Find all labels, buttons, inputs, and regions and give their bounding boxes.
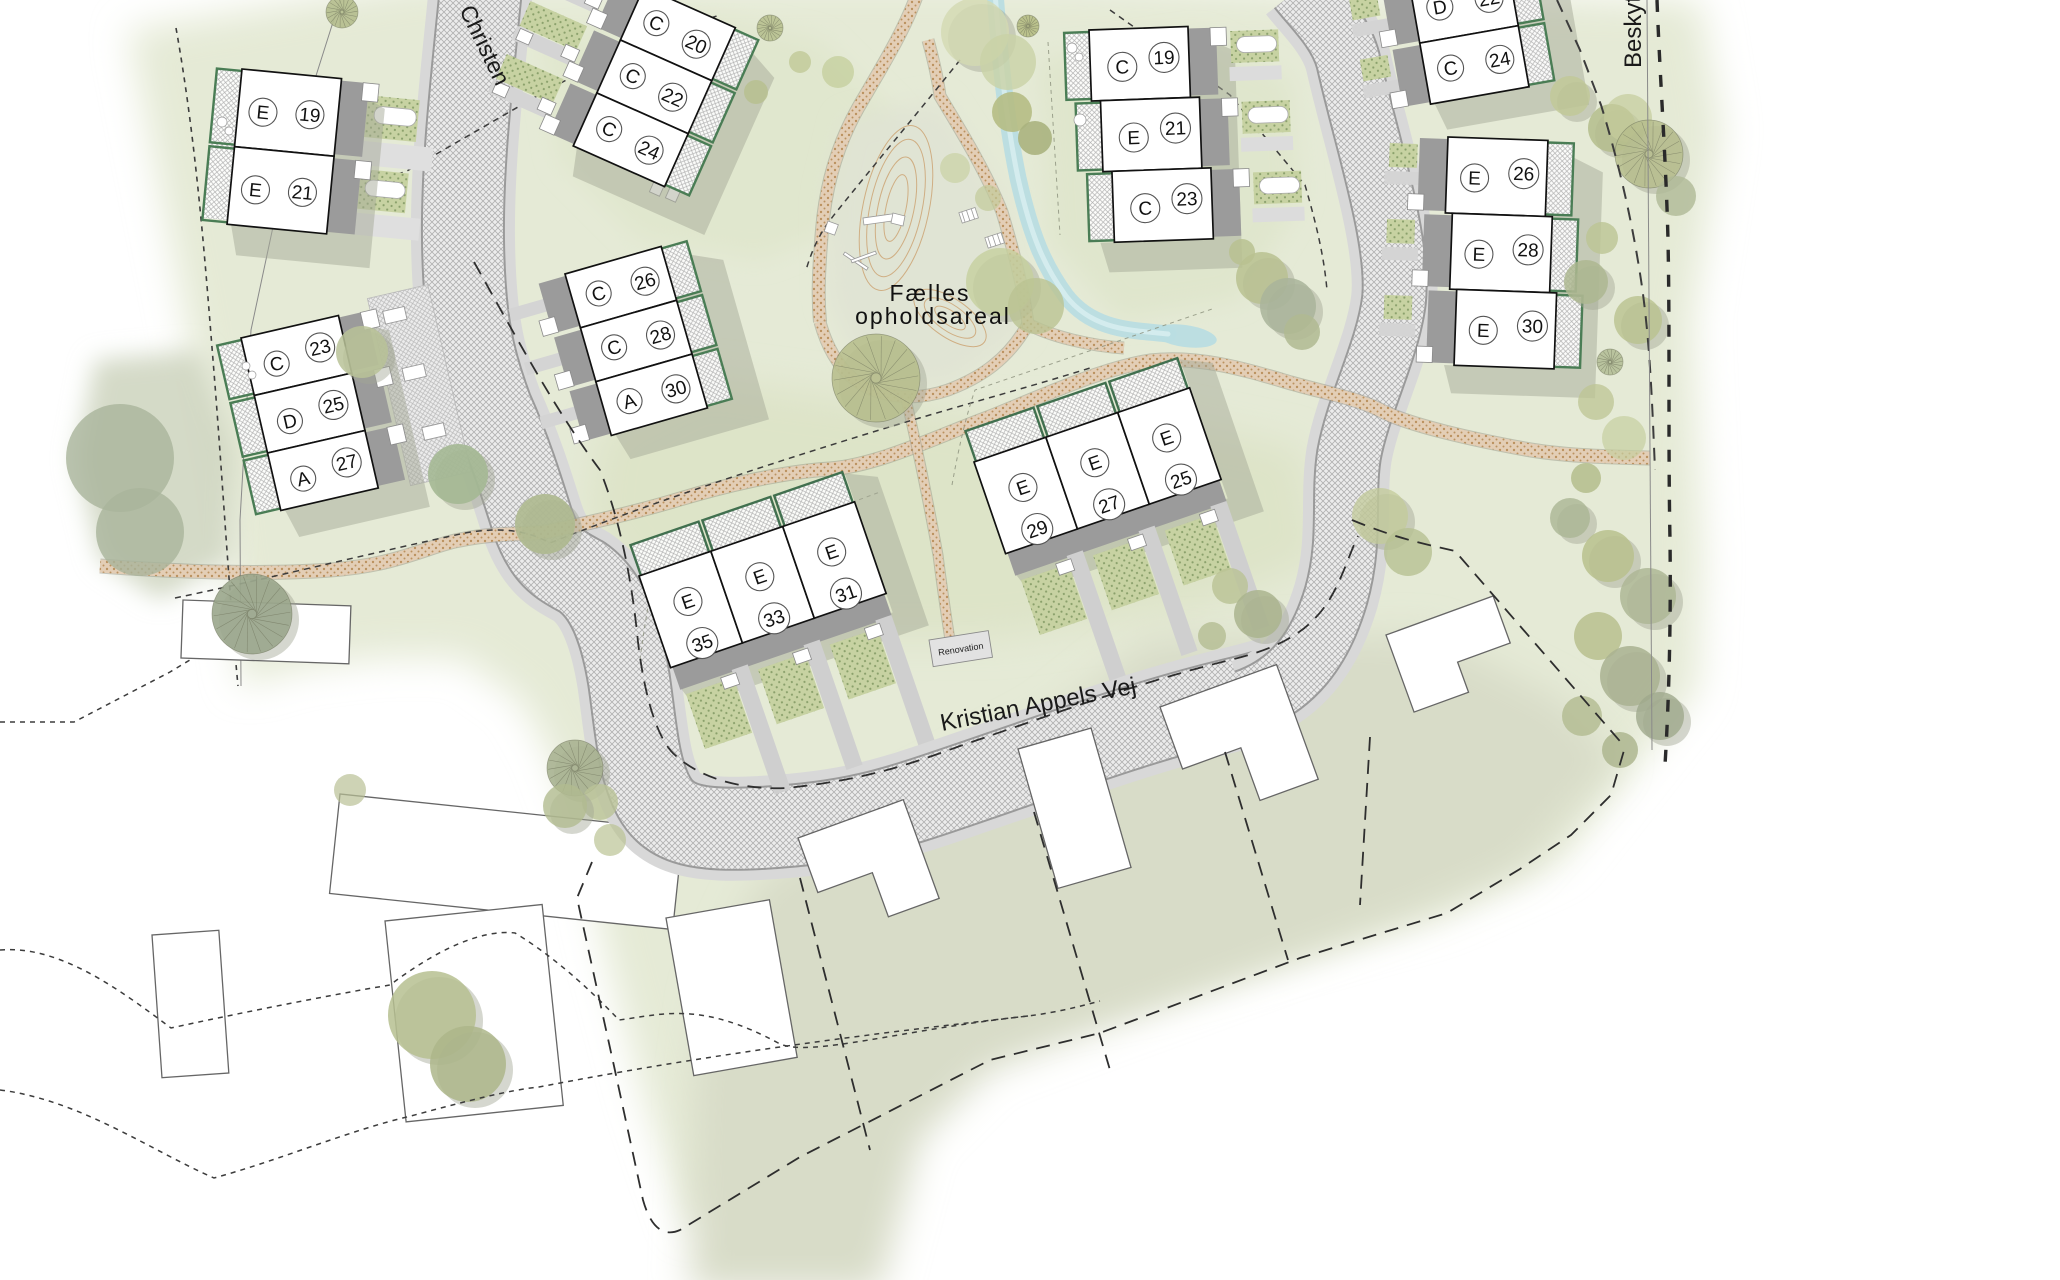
svg-text:21: 21: [1165, 118, 1187, 140]
svg-text:C: C: [1115, 57, 1129, 78]
svg-text:26: 26: [1513, 164, 1535, 186]
svg-text:D: D: [1431, 0, 1448, 20]
svg-text:19: 19: [298, 104, 321, 127]
svg-text:E: E: [256, 102, 271, 124]
svg-text:24: 24: [1488, 48, 1513, 72]
svg-text:23: 23: [1176, 189, 1198, 211]
svg-text:28: 28: [1517, 240, 1539, 262]
svg-text:30: 30: [1521, 316, 1543, 338]
svg-text:E: E: [1127, 128, 1140, 149]
svg-text:E: E: [1472, 245, 1485, 266]
svg-text:Beskyttelseslinje: Beskyttelseslinje: [1620, 0, 1647, 68]
svg-text:E: E: [1477, 321, 1490, 342]
svg-text:opholdsareal: opholdsareal: [855, 303, 1011, 329]
svg-text:19: 19: [1153, 48, 1175, 70]
svg-text:E: E: [248, 180, 263, 202]
svg-text:C: C: [1138, 199, 1152, 220]
svg-text:E: E: [1468, 168, 1481, 189]
svg-text:21: 21: [291, 182, 314, 205]
